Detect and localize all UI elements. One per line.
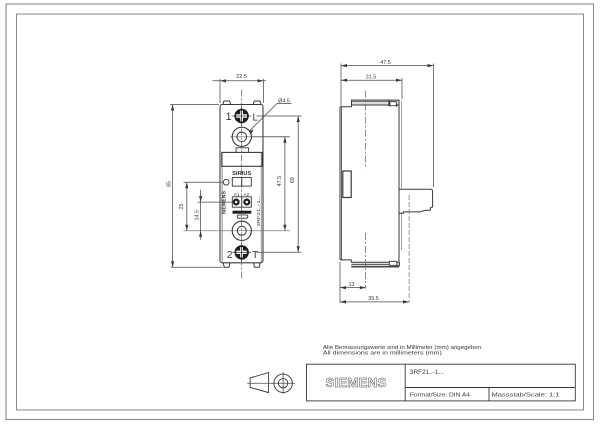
svg-text:2: 2	[227, 250, 233, 261]
svg-text:All dimensions are in millimet: All dimensions are in millimeters (mm)	[323, 350, 442, 356]
svg-text:T: T	[252, 250, 258, 261]
svg-text:3RF21..-1...: 3RF21..-1...	[256, 196, 262, 227]
svg-text:69: 69	[290, 177, 296, 183]
svg-text:Format/Size: DIN A4: Format/Size: DIN A4	[410, 392, 470, 398]
svg-text:14.5: 14.5	[195, 210, 201, 221]
svg-text:13: 13	[349, 282, 355, 288]
svg-text:A1: A1	[234, 192, 240, 197]
svg-text:47.5: 47.5	[277, 176, 283, 187]
svg-text:25: 25	[179, 203, 185, 209]
svg-text:85: 85	[167, 181, 173, 187]
svg-text:SIEMENS: SIEMENS	[221, 190, 227, 214]
svg-text:SIEMENS: SIEMENS	[325, 375, 386, 390]
svg-text:22.5: 22.5	[236, 74, 247, 80]
svg-text:Ø4.5: Ø4.5	[278, 98, 290, 104]
svg-text:Massstab/Scale: 1:1: Massstab/Scale: 1:1	[492, 392, 560, 398]
svg-text:3RF21..-1...: 3RF21..-1...	[410, 369, 444, 376]
svg-text:L: L	[253, 112, 259, 123]
svg-text:SIRIUS: SIRIUS	[232, 171, 252, 177]
svg-text:A2: A2	[244, 192, 250, 197]
svg-text:31.5: 31.5	[366, 75, 377, 81]
svg-text:1: 1	[225, 111, 231, 123]
svg-text:47.5: 47.5	[380, 60, 391, 66]
svg-text:35.5: 35.5	[368, 296, 379, 302]
